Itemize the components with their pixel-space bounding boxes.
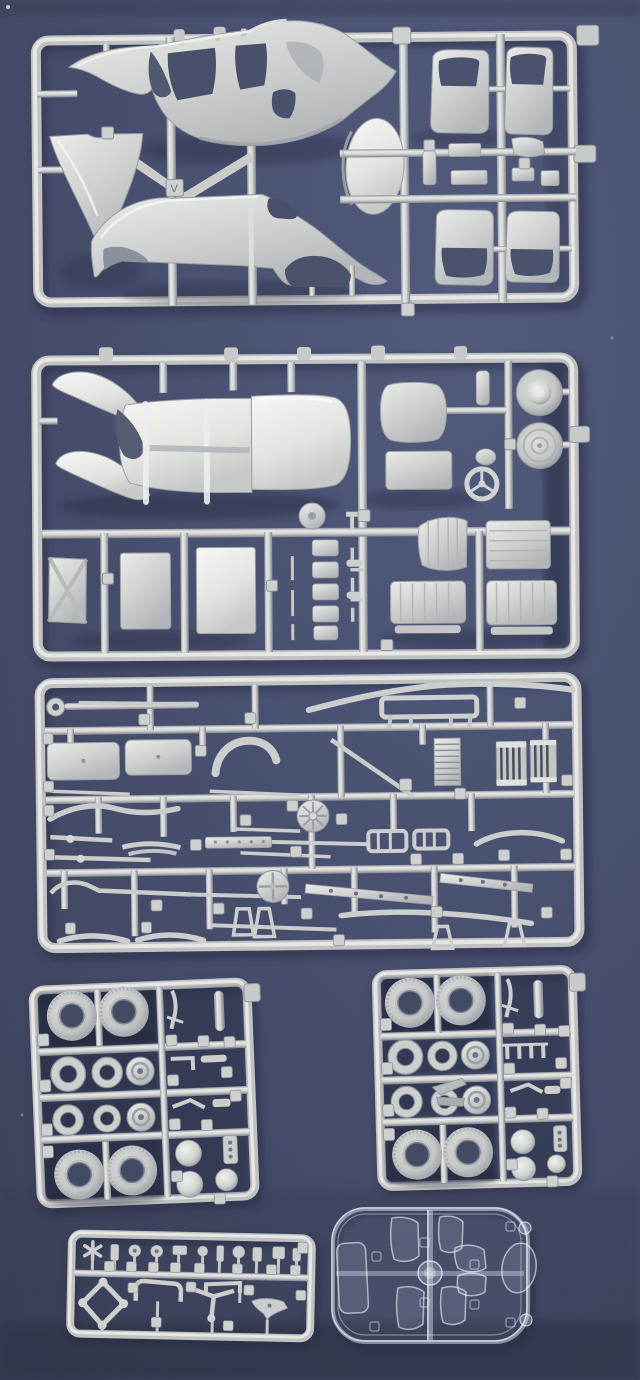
svg-text:V: V <box>170 183 178 195</box>
